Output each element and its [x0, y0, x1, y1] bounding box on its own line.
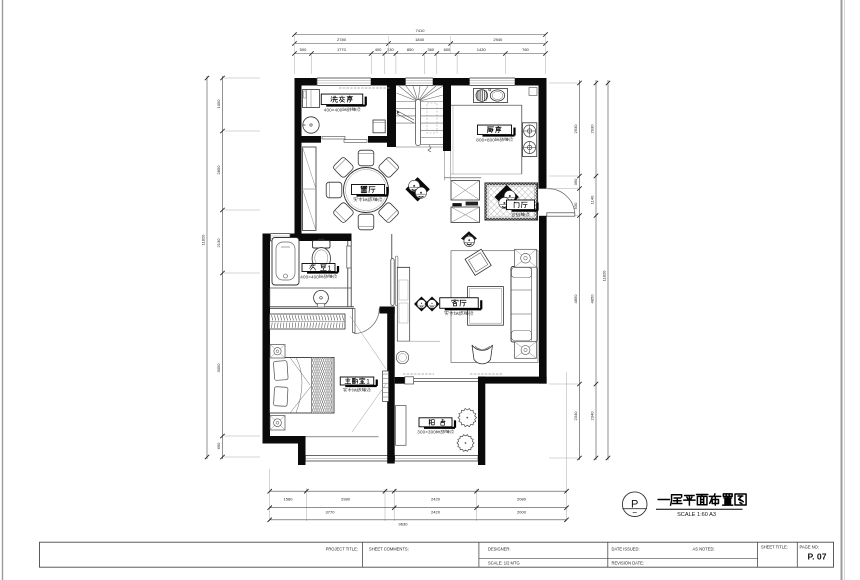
svg-text:SCALE 1:60 A3: SCALE 1:60 A3	[677, 512, 716, 518]
svg-text:1770: 1770	[337, 47, 347, 52]
svg-text:PROJECT TITLE:: PROJECT TITLE:	[326, 547, 358, 552]
svg-text:2940: 2940	[493, 37, 503, 42]
svg-text:1140: 1140	[590, 195, 595, 204]
svg-text:1580: 1580	[284, 497, 294, 502]
svg-text:760: 760	[522, 47, 529, 52]
svg-text:DATE ISSUED:: DATE ISSUED:	[612, 547, 640, 552]
svg-text:2420: 2420	[431, 510, 441, 515]
svg-text:4850: 4850	[573, 294, 578, 304]
svg-text:600: 600	[444, 47, 451, 52]
svg-text:2340: 2340	[573, 411, 578, 421]
svg-text:1840: 1840	[415, 37, 425, 42]
svg-text:9630: 9630	[399, 522, 409, 527]
svg-text:3770: 3770	[326, 510, 336, 515]
svg-text:2930: 2930	[573, 124, 578, 134]
svg-text:2420: 2420	[431, 497, 441, 502]
svg-text:690: 690	[216, 442, 221, 449]
svg-text:PAGE NO:: PAGE NO:	[800, 545, 820, 550]
svg-text:360: 360	[427, 47, 434, 52]
svg-text:2850: 2850	[216, 165, 221, 175]
svg-text:2780: 2780	[337, 37, 347, 42]
svg-text:2130: 2130	[216, 238, 221, 248]
svg-text:SHEET COMMENTS:: SHEET COMMENTS:	[369, 547, 409, 552]
svg-text:3050: 3050	[216, 363, 221, 373]
svg-text:500: 500	[300, 47, 307, 52]
svg-text:2930: 2930	[590, 124, 595, 134]
svg-text:AS NOTED:: AS NOTED:	[693, 547, 715, 552]
svg-text:7410: 7410	[416, 28, 426, 33]
svg-text:2340: 2340	[590, 411, 595, 421]
svg-text:2080: 2080	[517, 497, 527, 502]
svg-text:DESIGNER:: DESIGNER:	[488, 547, 511, 552]
svg-text:11820: 11820	[201, 234, 206, 246]
svg-text:390: 390	[573, 178, 578, 185]
svg-text:330: 330	[387, 47, 394, 52]
svg-text:P: P	[631, 499, 638, 511]
svg-text:SCALE: 1/2 MTG: SCALE: 1/2 MTG	[488, 560, 520, 565]
svg-text:11820: 11820	[602, 270, 607, 282]
svg-text:2000: 2000	[517, 510, 527, 515]
svg-text:1050: 1050	[216, 99, 221, 109]
svg-text:4850: 4850	[590, 294, 595, 304]
svg-text:850: 850	[407, 47, 414, 52]
svg-text:2980: 2980	[341, 497, 351, 502]
svg-text:1430: 1430	[477, 47, 487, 52]
svg-text:400: 400	[375, 47, 382, 52]
svg-text:SHEET TITLE:: SHEET TITLE:	[761, 545, 788, 550]
svg-text:1: 1	[328, 265, 332, 272]
svg-text:P. 07: P. 07	[808, 552, 827, 562]
svg-text:REVISION DATE:: REVISION DATE:	[612, 560, 644, 565]
svg-text:1: 1	[366, 379, 370, 386]
